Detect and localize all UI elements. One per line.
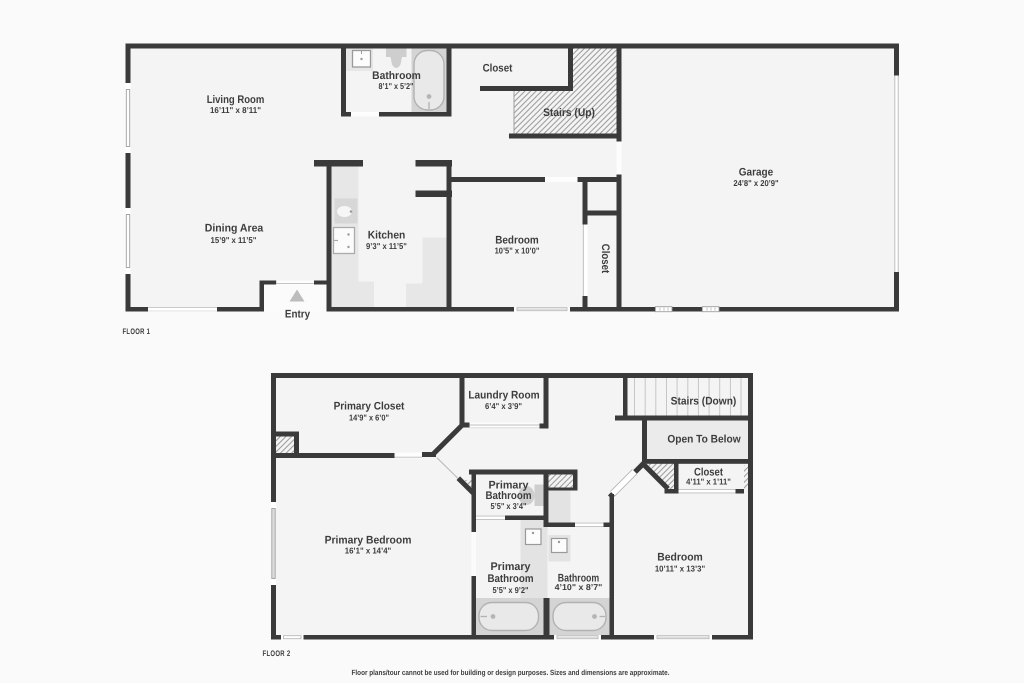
svg-text:Bedroom: Bedroom bbox=[657, 551, 703, 563]
svg-text:Laundry Room: Laundry Room bbox=[468, 389, 539, 401]
svg-text:Open To Below: Open To Below bbox=[667, 433, 741, 445]
svg-text:14’9" x 6’0": 14’9" x 6’0" bbox=[349, 413, 389, 423]
svg-text:10’11" x 13’3": 10’11" x 13’3" bbox=[655, 564, 705, 574]
svg-text:Entry: Entry bbox=[285, 309, 311, 321]
svg-text:5’5" x 9’2": 5’5" x 9’2" bbox=[493, 585, 529, 595]
svg-text:Stairs (Down): Stairs (Down) bbox=[671, 395, 737, 407]
svg-text:16’11" x 8’11": 16’11" x 8’11" bbox=[210, 105, 261, 115]
svg-text:4’10" x 8’7": 4’10" x 8’7" bbox=[555, 582, 603, 592]
svg-text:9’3" x 11’5": 9’3" x 11’5" bbox=[366, 241, 407, 251]
svg-text:5’5" x 3’4": 5’5" x 3’4" bbox=[491, 501, 527, 511]
svg-text:6’4" x 3’9": 6’4" x 3’9" bbox=[485, 401, 522, 411]
svg-text:Kitchen: Kitchen bbox=[368, 229, 406, 241]
svg-text:8’1" x 5’2": 8’1" x 5’2" bbox=[379, 81, 414, 91]
svg-text:Bathroom: Bathroom bbox=[372, 70, 421, 82]
svg-text:Dining Area: Dining Area bbox=[205, 222, 264, 234]
svg-text:15’9" x 11’5": 15’9" x 11’5" bbox=[211, 235, 257, 245]
svg-text:Floor plans/tour cannot be use: Floor plans/tour cannot be used for buil… bbox=[352, 668, 670, 677]
svg-text:16’1" x 14’4": 16’1" x 14’4" bbox=[345, 546, 392, 556]
svg-text:Primary Closet: Primary Closet bbox=[334, 400, 405, 412]
svg-text:Closet: Closet bbox=[599, 244, 611, 274]
svg-text:Living Room: Living Room bbox=[207, 94, 265, 106]
svg-text:Closet: Closet bbox=[483, 62, 513, 74]
svg-text:10’5" x 10’0": 10’5" x 10’0" bbox=[495, 246, 540, 256]
svg-text:FLOOR 1: FLOOR 1 bbox=[123, 327, 151, 336]
svg-text:Bedroom: Bedroom bbox=[495, 234, 539, 246]
svg-text:Bathroom: Bathroom bbox=[487, 573, 533, 585]
svg-text:FLOOR 2: FLOOR 2 bbox=[263, 649, 291, 658]
svg-text:Stairs (Up): Stairs (Up) bbox=[543, 107, 595, 119]
svg-text:Garage: Garage bbox=[739, 166, 773, 178]
svg-text:Primary Bedroom: Primary Bedroom bbox=[325, 534, 412, 546]
svg-text:24’8" x 20’9": 24’8" x 20’9" bbox=[733, 178, 778, 188]
svg-text:Primary: Primary bbox=[491, 561, 532, 573]
svg-text:4’11" x 1’11": 4’11" x 1’11" bbox=[686, 477, 731, 487]
